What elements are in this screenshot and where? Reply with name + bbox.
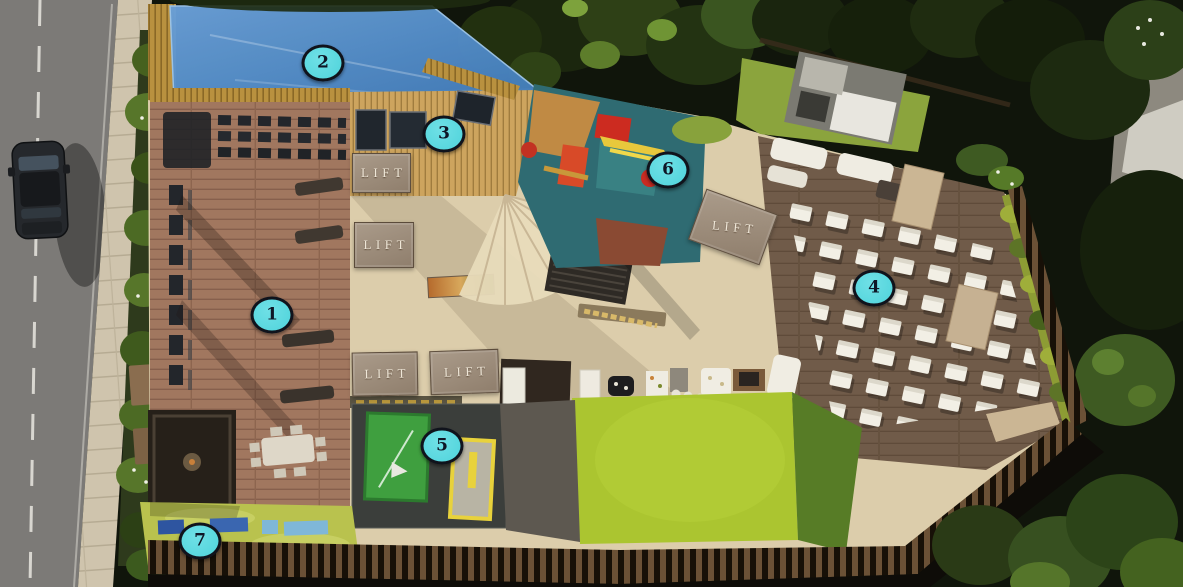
lift-label-text: LIFT	[364, 366, 410, 383]
lift-label-text: LIFT	[712, 217, 759, 238]
lift-label-2: LIFT	[354, 222, 414, 268]
map-marker-2[interactable]: 2	[302, 45, 345, 82]
marker-number: 6	[662, 162, 674, 179]
map-marker-1[interactable]: 1	[251, 297, 294, 334]
lift-label-1: LIFT	[352, 153, 411, 193]
marker-number: 7	[194, 533, 206, 550]
marker-number: 4	[868, 280, 880, 297]
lift-label-text: LIFT	[444, 363, 490, 381]
lift-label-text: LIFT	[363, 237, 409, 253]
map-marker-4[interactable]: 4	[853, 270, 896, 307]
map-marker-7[interactable]: 7	[179, 523, 222, 560]
marker-number: 5	[436, 438, 448, 455]
marker-number: 3	[438, 126, 450, 143]
rooftop-amenity-plan: LIFTLIFTLIFTLIFTLIFT1234567	[0, 0, 1183, 587]
map-marker-6[interactable]: 6	[647, 152, 690, 189]
map-marker-3[interactable]: 3	[423, 116, 466, 153]
lift-label-5: LIFT	[688, 189, 778, 266]
map-marker-5[interactable]: 5	[421, 428, 464, 465]
lift-label-3: LIFT	[352, 351, 419, 396]
lift-label-text: LIFT	[361, 165, 407, 181]
marker-number: 1	[266, 307, 278, 324]
annotation-layer: LIFTLIFTLIFTLIFTLIFT1234567	[0, 0, 1183, 587]
lift-label-4: LIFT	[429, 349, 499, 395]
marker-number: 2	[317, 55, 329, 72]
